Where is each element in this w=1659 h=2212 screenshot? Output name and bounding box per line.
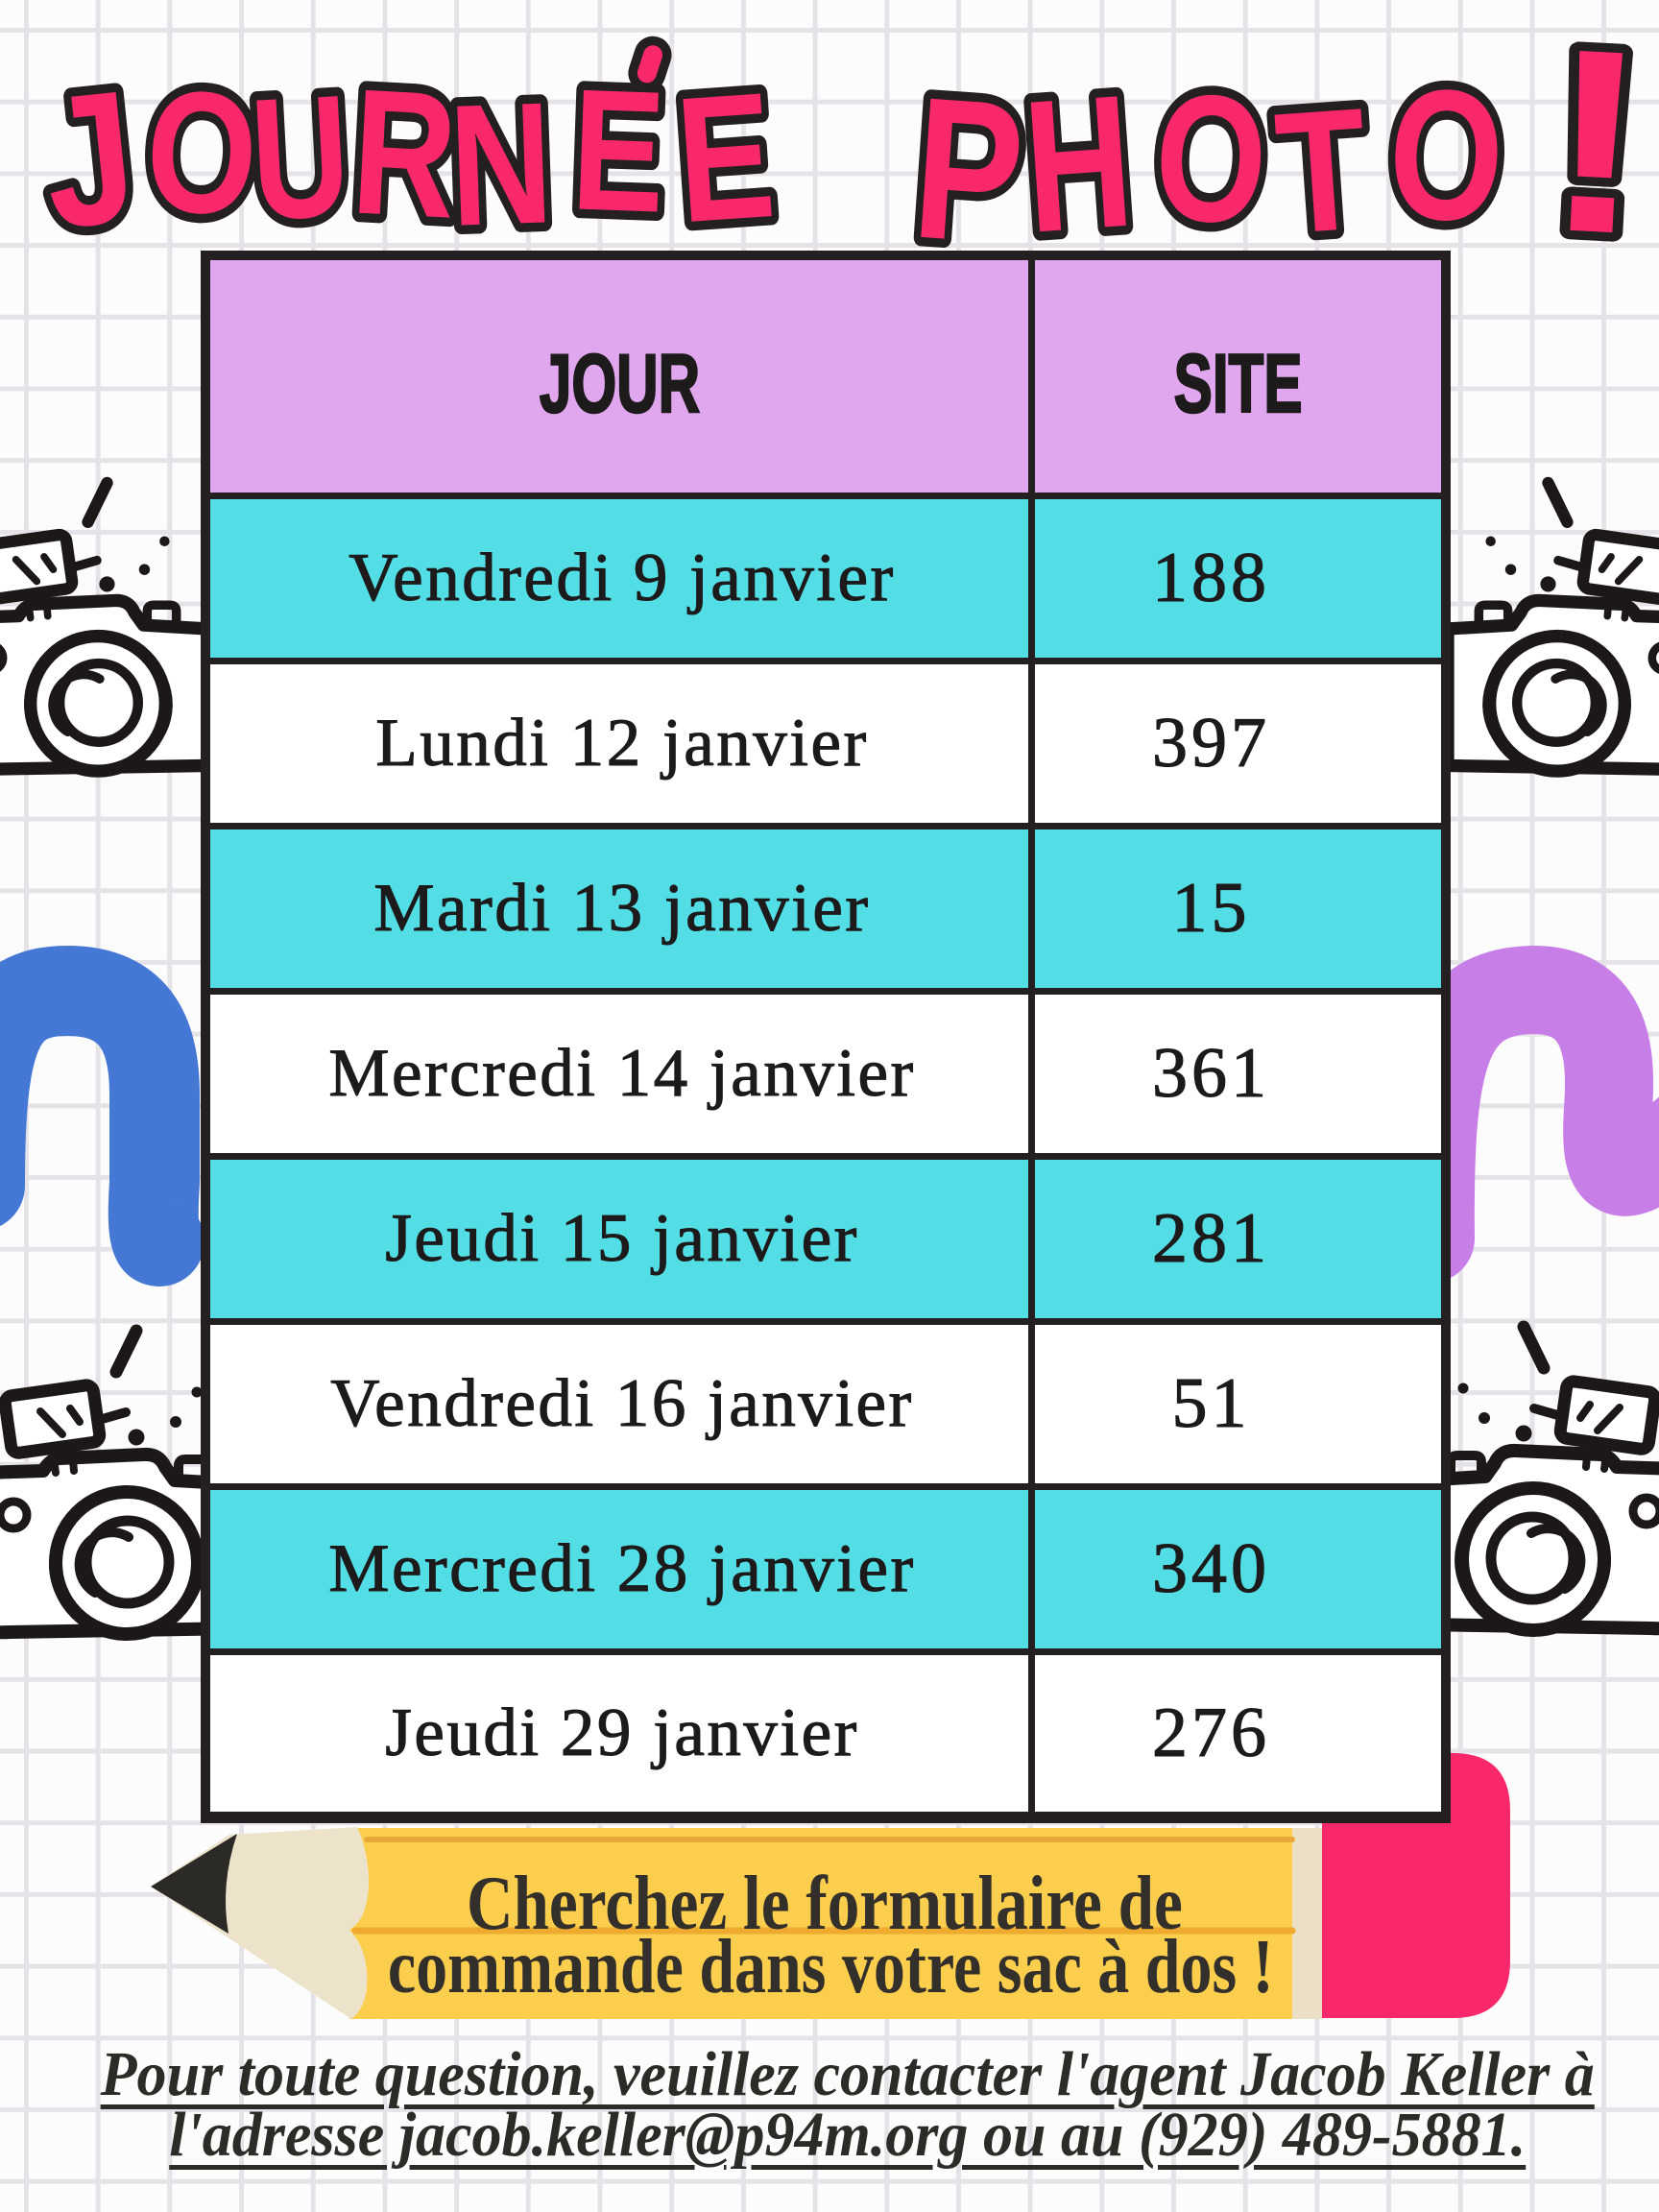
svg-text:O: O xyxy=(1384,49,1509,261)
svg-text:J: J xyxy=(35,52,144,269)
svg-text:O: O xyxy=(1150,55,1271,261)
svg-text:N: N xyxy=(446,65,556,262)
svg-text:!: ! xyxy=(1539,0,1654,278)
svg-text:U: U xyxy=(247,60,354,257)
svg-text:H: H xyxy=(1019,56,1139,273)
svg-text:E: E xyxy=(671,55,780,260)
svg-text:P: P xyxy=(907,56,1030,278)
svg-text:O: O xyxy=(142,53,262,252)
svg-text:T: T xyxy=(1270,73,1373,271)
svg-text:R: R xyxy=(348,52,461,256)
